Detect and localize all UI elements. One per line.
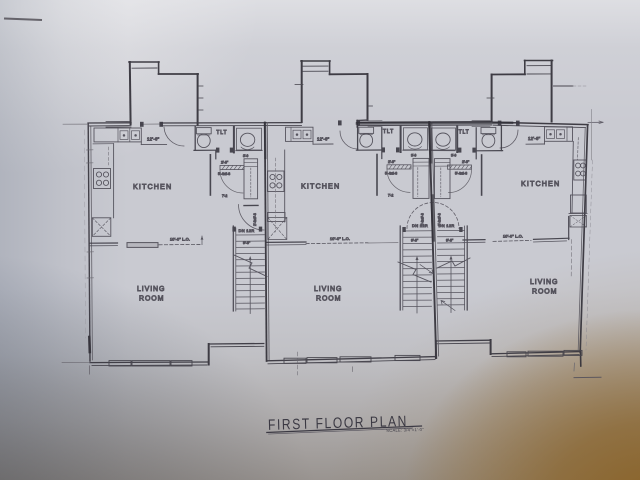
svg-text:10'-0" L.O.: 10'-0" L.O. [170,238,190,242]
svg-text:5'-4x6-8: 5'-4x6-8 [455,172,467,176]
svg-text:12'-6": 12'-6" [528,136,541,141]
svg-text:2'-8x6'-8: 2'-8x6'-8 [253,213,257,226]
svg-text:SCALE: 3/4"=1'-0": SCALE: 3/4"=1'-0" [386,427,424,433]
svg-text:ROOM: ROOM [532,289,557,296]
svg-text:9'-8": 9'-8" [411,239,419,243]
svg-text:KITCHEN: KITCHEN [301,182,340,191]
svg-text:DN 12R: DN 12R [239,228,255,233]
svg-text:3'-0: 3'-0 [411,154,416,158]
svg-text:LIVING: LIVING [530,279,558,286]
svg-text:2'-8x6'-8: 2'-8x6'-8 [421,213,425,226]
svg-text:2'-8": 2'-8" [388,160,396,164]
svg-text:LIVING: LIVING [137,286,165,293]
svg-text:2'-8x6'-8: 2'-8x6'-8 [438,213,442,226]
svg-text:ROOM: ROOM [139,296,164,303]
svg-text:TLT: TLT [459,130,470,136]
svg-text:LIVING: LIVING [314,286,342,293]
svg-text:TLT: TLT [216,130,227,136]
svg-text:2'-8": 2'-8" [221,161,229,165]
svg-text:10'-0" L.O.: 10'-0" L.O. [503,234,523,238]
svg-text:7'-2: 7'-2 [388,194,393,198]
svg-text:9'-8": 9'-8" [243,241,251,245]
svg-text:3'-0: 3'-0 [243,154,248,158]
svg-text:10'-0" L.O.: 10'-0" L.O. [330,237,350,241]
svg-text:KITCHEN: KITCHEN [133,182,172,191]
svg-text:3'-0: 3'-0 [451,154,456,158]
svg-text:2'-8": 2'-8" [462,160,470,164]
svg-text:9'-8": 9'-8" [446,238,454,242]
svg-text:7'-2: 7'-2 [222,194,227,198]
svg-text:12'-6": 12'-6" [147,137,160,142]
svg-text:TLT: TLT [383,129,394,135]
svg-text:KITCHEN: KITCHEN [521,179,560,188]
svg-text:ROOM: ROOM [316,296,341,303]
svg-text:12'-6": 12'-6" [317,136,330,141]
